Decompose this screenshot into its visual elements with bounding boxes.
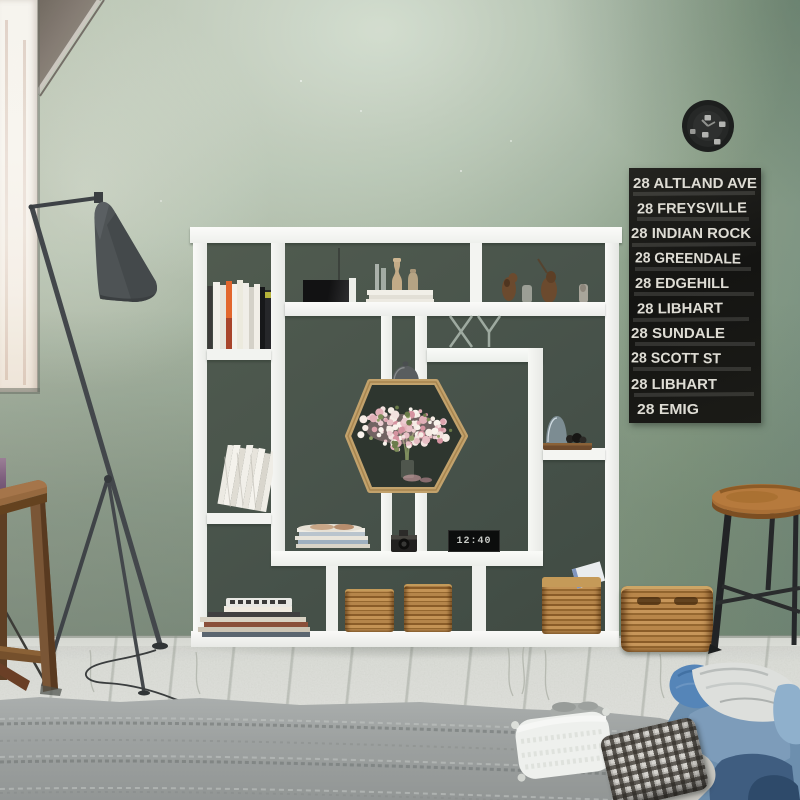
svg-text:28 SCOTT ST: 28 SCOTT ST [631,350,721,367]
svg-text:28 FREYSVILLE: 28 FREYSVILLE [637,200,747,217]
svg-text:28 GREENDALE: 28 GREENDALE [635,250,741,267]
svg-text:28 SUNDALE: 28 SUNDALE [631,326,725,342]
svg-text:28 LIBHART: 28 LIBHART [637,301,723,318]
svg-text:28 EMIG: 28 EMIG [637,402,699,418]
svg-text:28 ALTLAND AVE: 28 ALTLAND AVE [633,176,757,192]
svg-text:28 EDGEHILL: 28 EDGEHILL [635,276,729,292]
svg-text:28 INDIAN ROCK: 28 INDIAN ROCK [631,226,752,242]
svg-text:28 LIBHART: 28 LIBHART [631,377,717,393]
